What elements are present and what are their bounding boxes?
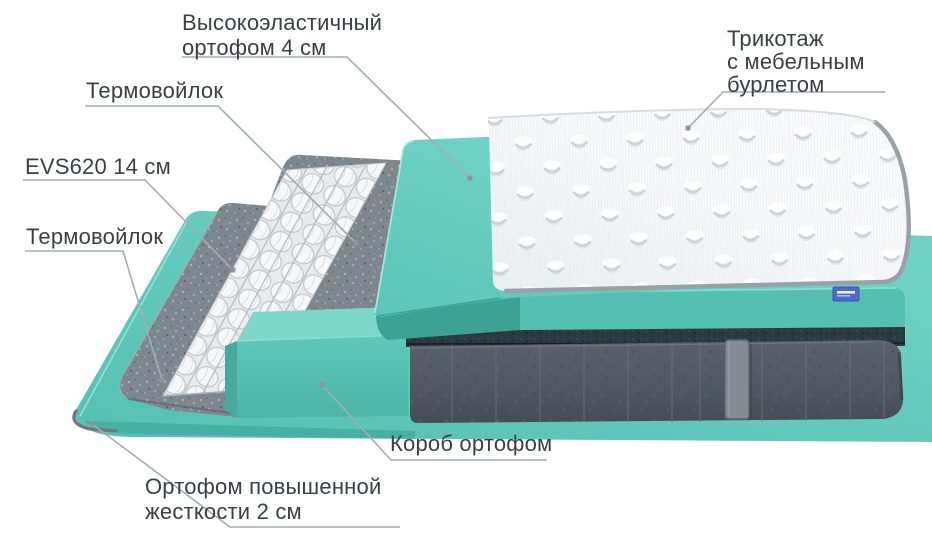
label-base-foam: Ортофом повышенной жесткости 2 см — [145, 474, 381, 524]
label-top-foam-line1: Высокоэластичный — [182, 10, 382, 35]
label-springs: EVS620 14 см — [25, 154, 171, 179]
label-base-foam-line2: жесткости 2 см — [145, 499, 381, 524]
label-thermofelt-upper: Термовойлок — [86, 78, 223, 103]
velvet-base — [410, 340, 903, 423]
handle — [725, 340, 751, 419]
label-knit-cover-line1: Трикотаж — [727, 27, 865, 50]
mattress-layers-diagram: Высокоэластичный ортофом 4 см Трикотаж с… — [0, 0, 932, 541]
label-top-foam: Высокоэластичный ортофом 4 см — [182, 10, 382, 60]
knit-cover — [488, 109, 909, 301]
label-top-foam-line2: ортофом 4 см — [182, 35, 382, 60]
label-knit-cover: Трикотаж с мебельным бурлетом — [727, 27, 865, 96]
label-thermofelt-lower: Термовойлок — [26, 224, 163, 249]
label-base-foam-line1: Ортофом повышенной — [145, 474, 381, 499]
label-foam-box: Короб ортофом — [390, 431, 552, 456]
brand-tag — [833, 287, 859, 301]
label-knit-cover-line3: бурлетом — [727, 73, 865, 96]
label-knit-cover-line2: с мебельным — [727, 50, 865, 73]
